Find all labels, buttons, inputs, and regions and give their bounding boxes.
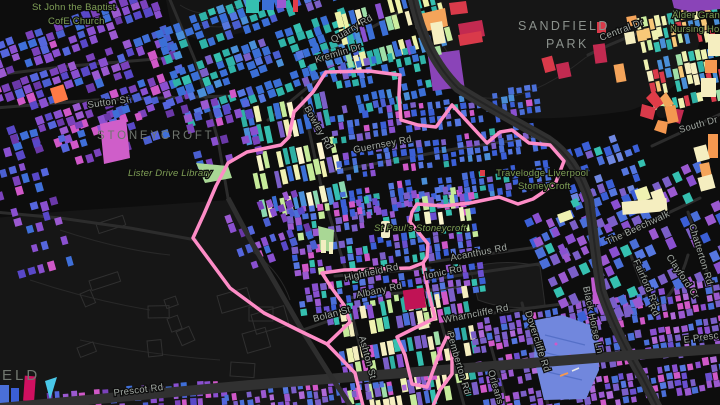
svg-text:SANDFIELD: SANDFIELD: [518, 19, 610, 33]
svg-text:PARK: PARK: [546, 37, 589, 51]
svg-text:Lister Drive Library: Lister Drive Library: [128, 168, 213, 179]
svg-text:ELD: ELD: [2, 367, 40, 384]
svg-text:STONEYCROFT: STONEYCROFT: [97, 130, 214, 142]
svg-text:St Paul’s Stoneycroft: St Paul’s Stoneycroft: [374, 223, 466, 234]
svg-text:Alder Grange: Alder Grange: [672, 10, 720, 21]
svg-text:St John the Baptist: St John the Baptist: [32, 2, 116, 13]
svg-text:Nursing Ho: Nursing Ho: [670, 24, 720, 35]
svg-text:CofE Church: CofE Church: [48, 16, 105, 27]
svg-text:StoneyCroft: StoneyCroft: [518, 181, 571, 192]
svg-text:Travelodge Liverpool: Travelodge Liverpool: [496, 168, 588, 179]
